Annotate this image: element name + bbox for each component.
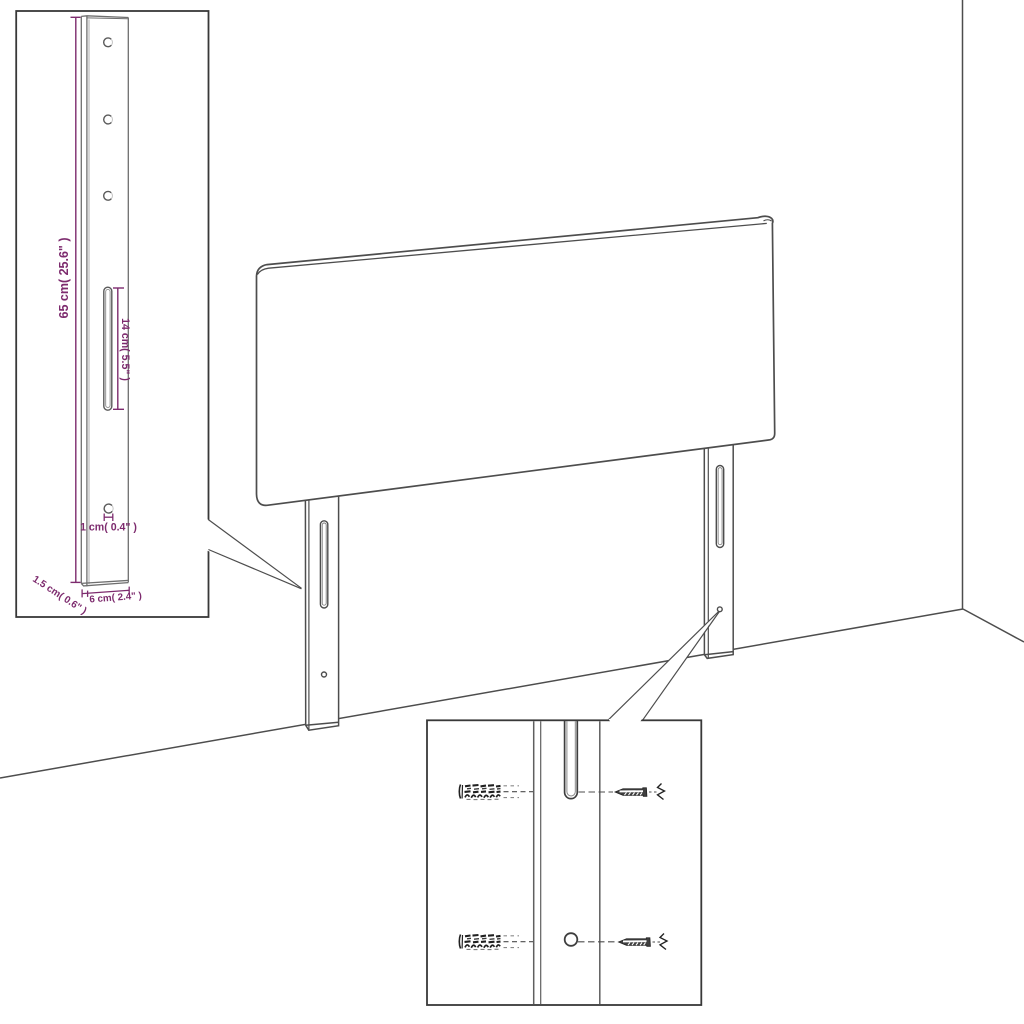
svg-text:65 cm( 25.6" ): 65 cm( 25.6" ) xyxy=(57,238,71,319)
svg-text:14 cm( 5.5" ): 14 cm( 5.5" ) xyxy=(119,318,131,381)
svg-text:1 cm( 0.4" ): 1 cm( 0.4" ) xyxy=(80,522,137,534)
